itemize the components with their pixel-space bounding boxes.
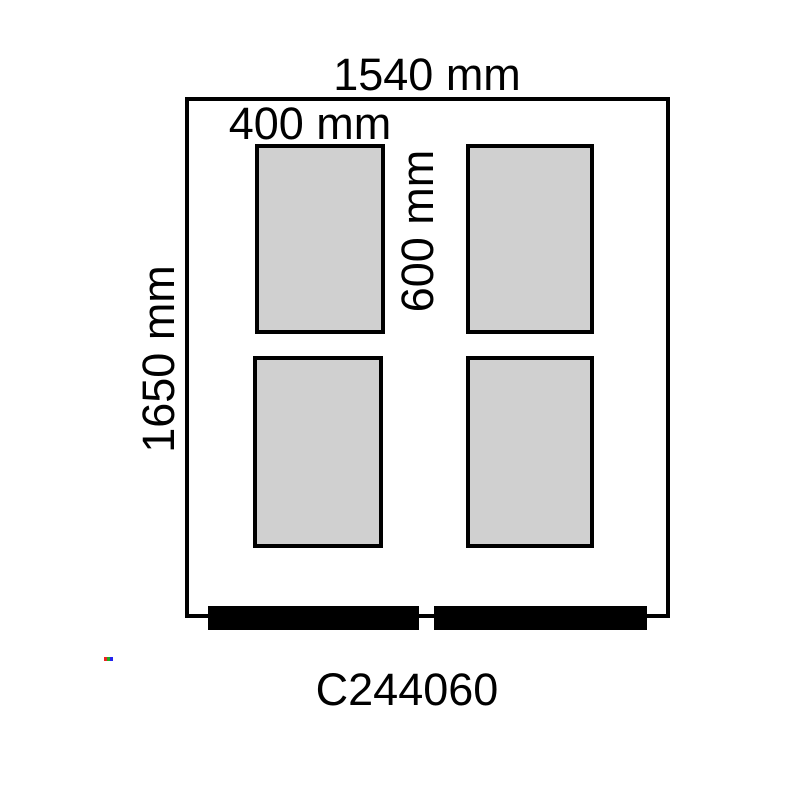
frame-width-dimension-label: 1540 mm (277, 52, 577, 98)
pixel-artifact-mark (104, 657, 113, 661)
bottom-bar-right (434, 606, 647, 630)
bottom-bar-left (208, 606, 419, 630)
panel-bottom-right (466, 356, 594, 548)
panel-top-left (255, 144, 385, 334)
frame-height-dimension-label: 1650 mm (136, 259, 182, 459)
panel-top-right (466, 144, 594, 334)
product-code-label: C244060 (257, 667, 557, 713)
diagram-canvas: 1540 mm 400 mm 600 mm 1650 mm C244060 (0, 0, 800, 800)
pixel-artifact-blue (110, 657, 113, 661)
panel-height-dimension-label: 600 mm (395, 131, 441, 331)
panel-bottom-left (253, 356, 383, 548)
